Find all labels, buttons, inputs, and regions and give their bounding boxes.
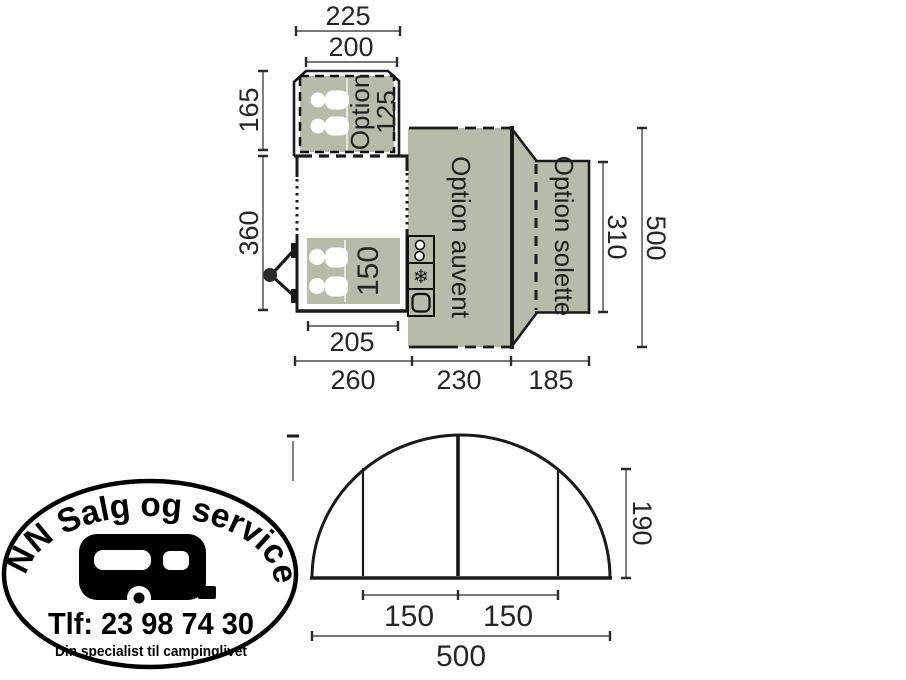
solette-label: Option solette <box>549 156 579 316</box>
svg-text:500: 500 <box>436 640 486 673</box>
person-icon <box>311 91 350 110</box>
dimension-total-width: 500 <box>312 631 610 673</box>
arch-outline <box>312 435 610 578</box>
dimension-bed-length: 205 <box>308 321 398 357</box>
elevation: 150 150 500 190 <box>287 435 657 673</box>
dimension-solette-height: 310 <box>598 162 632 312</box>
kitchen-unit: ❄ <box>408 236 434 316</box>
dimension-bottom-row: 260 230 185 <box>295 356 589 395</box>
awning-label: Option auvent <box>446 156 476 319</box>
svg-text:190: 190 <box>627 500 657 545</box>
svg-text:200: 200 <box>328 32 373 62</box>
svg-text:360: 360 <box>234 210 264 255</box>
person-icon <box>309 248 348 268</box>
bed: 150 <box>307 238 400 304</box>
svg-text:310: 310 <box>602 214 632 259</box>
person-icon <box>309 277 348 297</box>
dimension-annex-outer: 225 <box>296 1 400 36</box>
dimension-arch-height: 190 <box>621 469 657 578</box>
bed-width-label: 150 <box>352 246 385 296</box>
plan-drawing: Option125 <box>0 0 906 680</box>
dimension-panels: 150 150 <box>363 590 558 633</box>
svg-text:150: 150 <box>384 600 434 633</box>
logo: NN Salg og service Tlf: 23 98 74 30 Din … <box>0 481 305 667</box>
dimension-awning-height: 500 <box>637 128 671 347</box>
svg-text:165: 165 <box>234 87 264 132</box>
dimension-awning-width: 230 <box>436 365 481 395</box>
annex: Option125 <box>294 71 401 156</box>
svg-text:205: 205 <box>329 327 374 357</box>
svg-text:150: 150 <box>483 600 533 633</box>
caravan-awning-plan-image: Option125 <box>0 0 906 680</box>
floorplan: Option125 <box>234 1 671 395</box>
person-icon <box>311 117 350 136</box>
dimension-caravan-length: 360 <box>234 156 268 310</box>
logo-tagline: Din specialist til campinglivet <box>55 644 247 660</box>
dimension-annex-inner: 200 <box>306 32 397 67</box>
svg-text:225: 225 <box>325 1 370 31</box>
dimension-solette-width: 185 <box>528 365 573 395</box>
svg-text:500: 500 <box>641 215 671 260</box>
dimension-caravan-total: 260 <box>330 365 375 395</box>
hitch-ball <box>263 268 277 282</box>
dimension-annex-depth: 165 <box>234 71 268 150</box>
svg-text:❄: ❄ <box>413 266 429 288</box>
awning-taper-fill <box>512 128 537 347</box>
logo-phone: Tlf: 23 98 74 30 <box>48 606 254 641</box>
hitch <box>263 250 294 296</box>
